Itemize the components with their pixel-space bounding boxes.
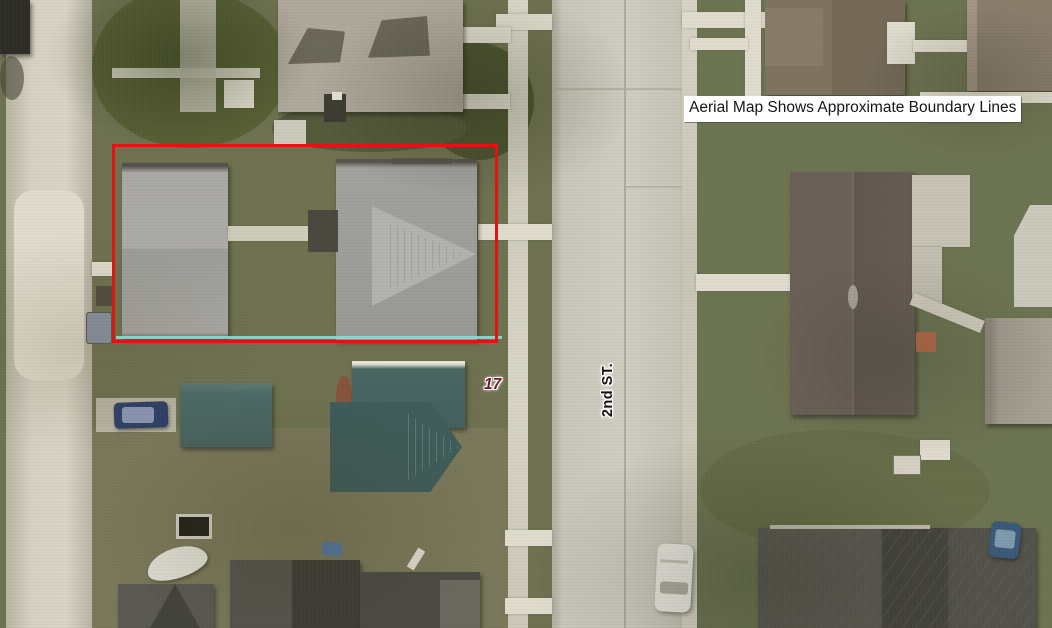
walkway-horizontal-right-block <box>690 38 748 50</box>
small-pad-left-edge <box>92 262 114 276</box>
pad-above-boundary <box>274 120 306 144</box>
driveway-top-left <box>180 0 216 112</box>
top-right-house2-roof <box>967 0 1052 91</box>
pad-top-left <box>224 80 254 108</box>
street-joint-line-1 <box>553 88 684 90</box>
walkway-left-lower-1 <box>505 530 552 546</box>
street-center-seam <box>624 0 626 628</box>
white-van <box>654 543 694 613</box>
dark-object-left-edge <box>96 286 112 306</box>
shadow-top-left <box>0 56 24 100</box>
red-boundary-box <box>112 144 498 343</box>
street-joint-line-2 <box>624 186 684 188</box>
pad-bottom-right-yard <box>920 440 950 460</box>
walkway-left-lower-2 <box>505 598 552 614</box>
gutter-highlight <box>770 525 930 529</box>
dark-building-top-left-roof <box>0 0 30 54</box>
blue-object-bottom-center <box>321 541 343 558</box>
patio-north-of-big-house <box>912 175 970 247</box>
right-lower-gray-roof <box>985 318 1052 424</box>
aerial-map: 17 2nd ST. Aerial Map Shows Approximate … <box>0 0 1052 628</box>
walkway-right-house <box>696 274 790 291</box>
street-name-label: 2nd ST. <box>566 354 650 426</box>
gray-car-left-edge <box>86 312 112 344</box>
teal-garage-roof <box>180 383 272 447</box>
boundary-disclaimer-banner: Aerial Map Shows Approximate Boundary Li… <box>684 96 1021 122</box>
walkway-top-house-b <box>460 94 510 109</box>
white-object-backyard <box>893 455 921 475</box>
orange-object <box>916 332 936 352</box>
walkway-top-house-a <box>455 27 511 43</box>
white-van-windshield <box>660 581 689 594</box>
patio-right-of-house1 <box>887 22 915 64</box>
left-alley-bright-patch <box>14 190 84 380</box>
bottom-center-roof-b-dark <box>292 560 360 628</box>
street-pavement <box>552 0 685 628</box>
chimney-highlight <box>332 92 342 100</box>
bottom-center-roof-c-light <box>440 580 480 628</box>
big-right-house-vents <box>848 285 858 309</box>
top-right-house2-edge <box>967 0 977 91</box>
utility-trailer <box>176 514 212 539</box>
lot-17-label: 17 <box>484 376 501 394</box>
sidewalk-right <box>682 0 697 628</box>
blue-car-roof-highlight <box>122 407 154 423</box>
walkway-between-houses-top-right <box>913 40 967 52</box>
top-right-house1-wing <box>765 8 823 66</box>
street-name-text: 2nd ST. <box>600 363 616 417</box>
blue-car-bottom-right-glass <box>994 529 1016 549</box>
